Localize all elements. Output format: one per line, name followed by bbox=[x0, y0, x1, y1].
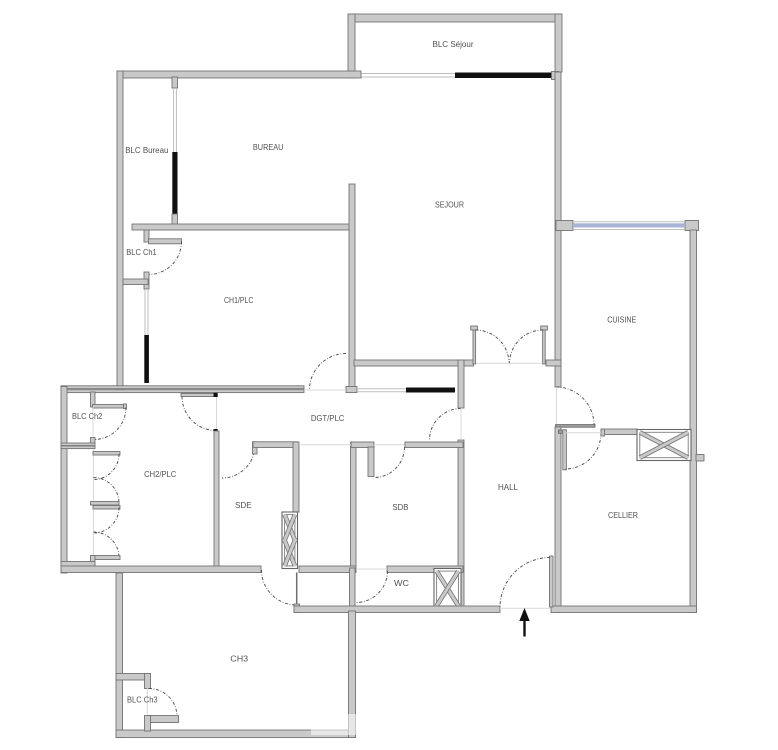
svg-text:BLC Ch2: BLC Ch2 bbox=[72, 411, 102, 421]
svg-text:SEJOUR: SEJOUR bbox=[435, 200, 464, 210]
svg-text:WC: WC bbox=[394, 578, 409, 588]
svg-text:CELLIER: CELLIER bbox=[608, 510, 638, 520]
svg-text:CH3: CH3 bbox=[230, 654, 248, 664]
svg-text:CH1/PLC: CH1/PLC bbox=[224, 295, 253, 305]
svg-text:BLC Séjour: BLC Séjour bbox=[433, 39, 474, 49]
svg-text:BLC Ch3: BLC Ch3 bbox=[127, 695, 158, 705]
svg-text:SDB: SDB bbox=[392, 502, 408, 512]
svg-text:CH2/PLC: CH2/PLC bbox=[144, 469, 176, 479]
svg-text:CUISINE: CUISINE bbox=[607, 315, 636, 325]
svg-text:BUREAU: BUREAU bbox=[253, 142, 284, 152]
svg-text:HALL: HALL bbox=[498, 482, 518, 492]
svg-text:BLC Ch1: BLC Ch1 bbox=[126, 247, 157, 257]
svg-text:DGT/PLC: DGT/PLC bbox=[311, 413, 345, 423]
svg-text:BLC Bureau: BLC Bureau bbox=[125, 145, 168, 155]
svg-text:SDE: SDE bbox=[235, 500, 252, 510]
